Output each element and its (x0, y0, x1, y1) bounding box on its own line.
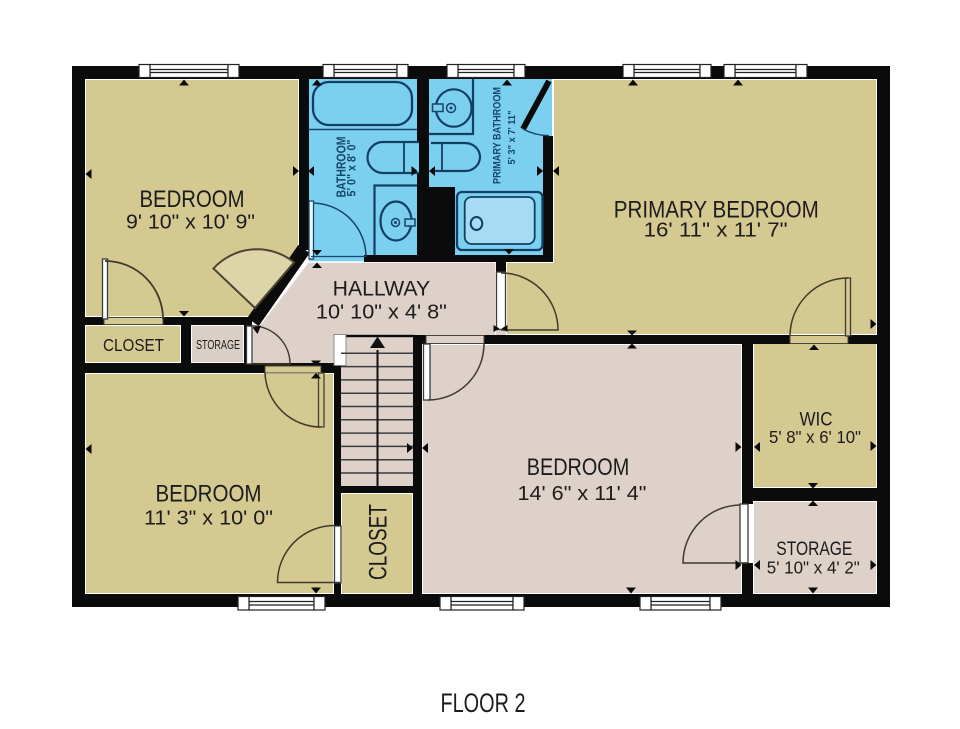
svg-text:CLOSET: CLOSET (365, 504, 393, 580)
svg-text:10' 10" x 4' 8": 10' 10" x 4' 8" (316, 301, 447, 324)
svg-text:PRIMARY BATHROOM: PRIMARY BATHROOM (492, 87, 504, 184)
svg-text:16' 11" x 11' 7": 16' 11" x 11' 7" (644, 219, 788, 242)
svg-text:9' 10" x 10' 9": 9' 10" x 10' 9" (126, 211, 255, 234)
svg-text:HALLWAY: HALLWAY (333, 278, 431, 301)
svg-text:5' 3" x 7' 11": 5' 3" x 7' 11" (506, 110, 518, 164)
svg-text:STORAGE: STORAGE (196, 338, 240, 352)
svg-text:5' 8" x 6' 10": 5' 8" x 6' 10" (769, 427, 861, 447)
svg-text:FLOOR 2: FLOOR 2 (441, 688, 526, 718)
svg-text:BEDROOM: BEDROOM (140, 186, 245, 213)
svg-text:14' 6" x 11' 4": 14' 6" x 11' 4" (518, 482, 647, 505)
svg-text:5' 0" x 8' 0": 5' 0" x 8' 0" (347, 140, 359, 197)
svg-text:11' 3" x 10' 0": 11' 3" x 10' 0" (144, 507, 273, 530)
svg-text:BEDROOM: BEDROOM (527, 454, 630, 481)
svg-text:5' 10" x 4' 2": 5' 10" x 4' 2" (767, 558, 860, 578)
svg-text:BEDROOM: BEDROOM (156, 481, 262, 508)
svg-text:CLOSET: CLOSET (103, 335, 164, 355)
